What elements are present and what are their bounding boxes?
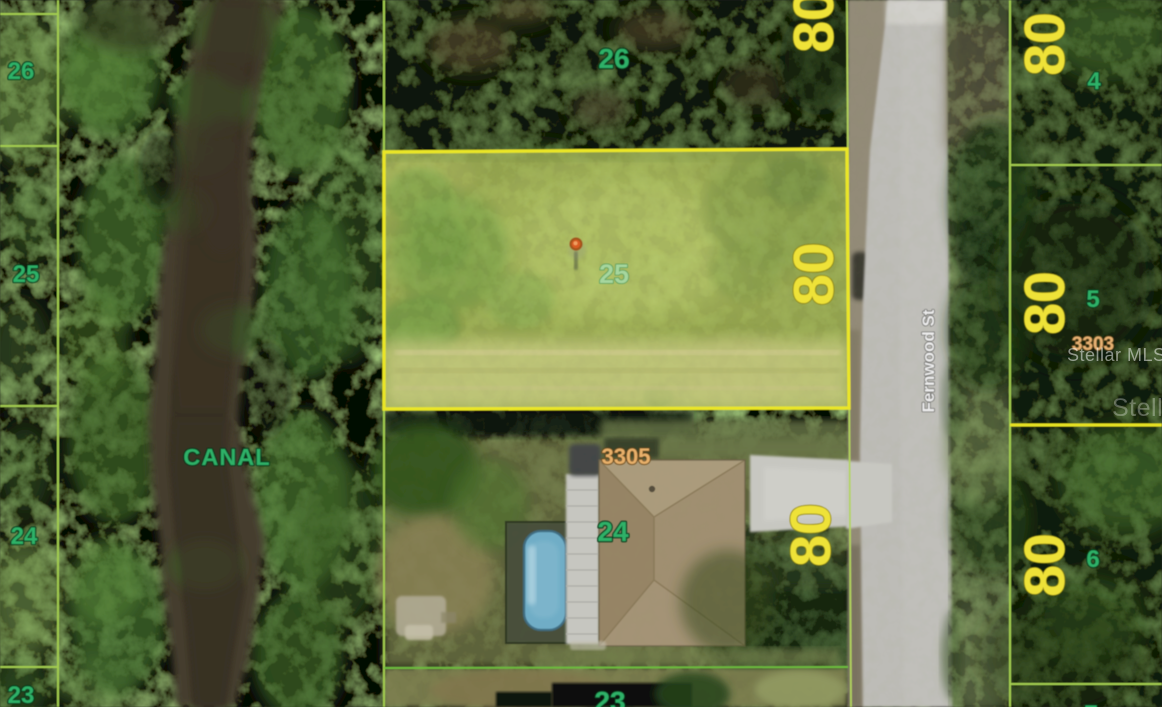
svg-text:25: 25 xyxy=(599,259,629,289)
svg-text:26: 26 xyxy=(8,58,35,85)
svg-text:24: 24 xyxy=(597,516,629,547)
svg-text:25: 25 xyxy=(13,261,40,288)
svg-text:23: 23 xyxy=(8,682,35,707)
svg-text:24: 24 xyxy=(11,523,38,550)
svg-text:Fernwood St: Fernwood St xyxy=(919,309,938,412)
svg-text:80: 80 xyxy=(1013,533,1077,596)
svg-text:Stellar MLS: Stellar MLS xyxy=(1067,345,1162,365)
svg-text:4: 4 xyxy=(1087,68,1101,95)
svg-text:80: 80 xyxy=(782,242,846,305)
svg-text:7: 7 xyxy=(1084,701,1097,707)
svg-text:5: 5 xyxy=(1086,286,1099,313)
svg-text:80: 80 xyxy=(1013,271,1077,334)
svg-text:80: 80 xyxy=(1013,12,1077,75)
svg-text:CANAL: CANAL xyxy=(183,444,270,470)
svg-text:3305: 3305 xyxy=(602,444,651,469)
svg-text:80: 80 xyxy=(782,0,846,53)
svg-text:Stell: Stell xyxy=(1112,394,1162,422)
svg-text:80: 80 xyxy=(779,503,843,566)
svg-text:26: 26 xyxy=(598,43,629,74)
svg-text:6: 6 xyxy=(1086,546,1099,573)
svg-text:23: 23 xyxy=(594,686,625,707)
